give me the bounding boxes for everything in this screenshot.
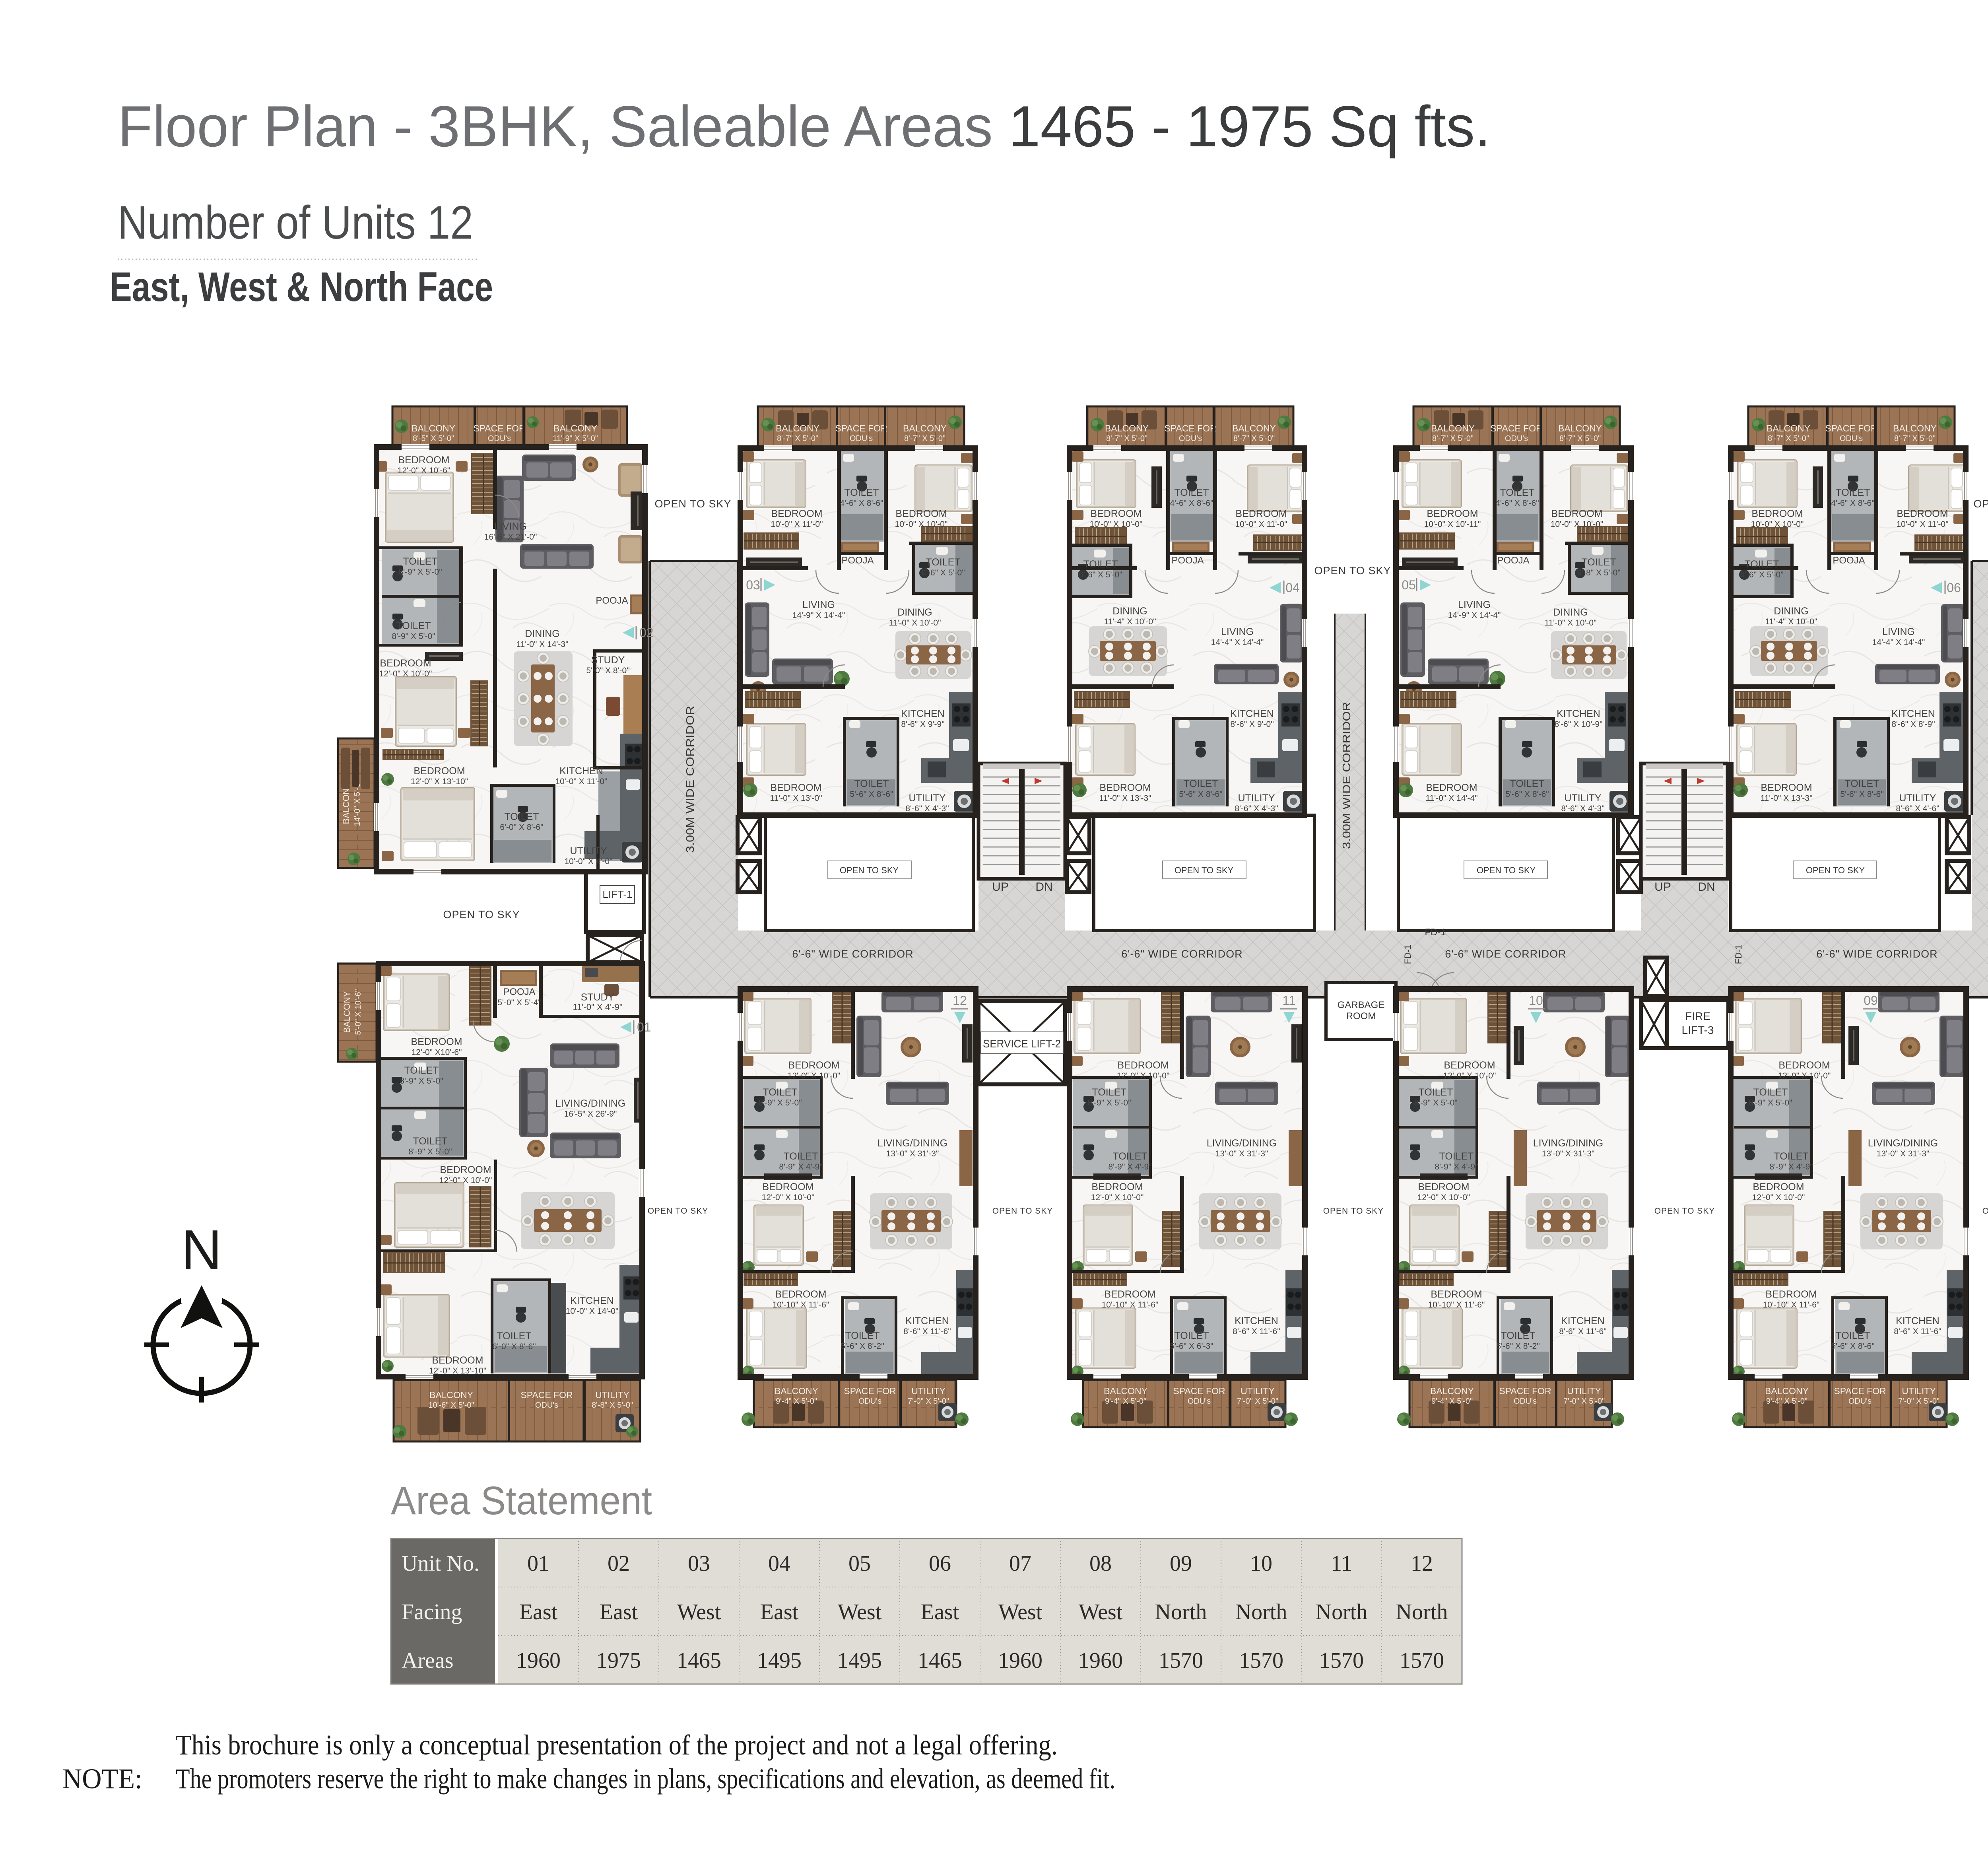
svg-text:03: 03 bbox=[688, 1551, 710, 1576]
svg-text:8'-9" X 5'-0": 8'-9" X 5'-0" bbox=[1414, 1098, 1457, 1107]
svg-text:BEDROOM: BEDROOM bbox=[788, 1060, 839, 1071]
svg-text:UTILITY: UTILITY bbox=[1238, 793, 1275, 804]
svg-text:8'-9" X 5'-0": 8'-9" X 5'-0" bbox=[1087, 1098, 1131, 1107]
svg-text:TOILET: TOILET bbox=[854, 778, 889, 789]
svg-text:4'-6" X 8'-6": 4'-6" X 8'-6" bbox=[1831, 499, 1874, 508]
svg-text:TOILET: TOILET bbox=[845, 1330, 879, 1341]
svg-text:BEDROOM: BEDROOM bbox=[775, 1289, 826, 1300]
svg-text:BEDROOM: BEDROOM bbox=[1751, 508, 1803, 519]
svg-text:OPEN TO SKY: OPEN TO SKY bbox=[1806, 865, 1865, 875]
svg-text:North: North bbox=[1396, 1600, 1448, 1624]
svg-text:10'-0" X 10'-0": 10'-0" X 10'-0" bbox=[895, 520, 948, 529]
svg-text:8'-9" X 5'-0": 8'-9" X 5'-0" bbox=[408, 1147, 452, 1156]
svg-text:1570: 1570 bbox=[1319, 1648, 1364, 1673]
svg-text:6'-6" WIDE CORRIDOR: 6'-6" WIDE CORRIDOR bbox=[1445, 948, 1566, 960]
svg-text:BALCONY: BALCONY bbox=[1558, 423, 1602, 433]
svg-text:BEDROOM: BEDROOM bbox=[440, 1164, 491, 1175]
svg-text:11'-0" X 14'-3": 11'-0" X 14'-3" bbox=[516, 640, 568, 649]
svg-text:BALCONY: BALCONY bbox=[412, 423, 455, 433]
svg-text:14'-9" X 14'-4": 14'-9" X 14'-4" bbox=[1448, 611, 1501, 620]
svg-text:SPACE FOR: SPACE FOR bbox=[1499, 1386, 1551, 1396]
svg-text:1465: 1465 bbox=[918, 1648, 962, 1673]
svg-text:7'-0" X 5'-0": 7'-0" X 5'-0" bbox=[1898, 1397, 1939, 1406]
svg-text:BALCONY: BALCONY bbox=[1893, 423, 1937, 433]
svg-text:UTILITY: UTILITY bbox=[909, 793, 945, 804]
svg-text:SPACE FOR: SPACE FOR bbox=[1834, 1386, 1886, 1396]
svg-text:TOILET: TOILET bbox=[504, 811, 539, 822]
svg-text:LIVING/DINING: LIVING/DINING bbox=[1533, 1138, 1603, 1149]
svg-text:6'-0" X 8'-6": 6'-0" X 8'-6" bbox=[492, 1342, 536, 1351]
svg-text:11'-0" X 10'-0": 11'-0" X 10'-0" bbox=[889, 618, 941, 627]
svg-text:10'-0" X 11'-0": 10'-0" X 11'-0" bbox=[555, 777, 607, 786]
svg-text:10'-0" X 11'-0": 10'-0" X 11'-0" bbox=[1896, 520, 1948, 529]
svg-text:12'-0" X 10'-0": 12'-0" X 10'-0" bbox=[1443, 1071, 1496, 1080]
svg-text:LIVING/DINING: LIVING/DINING bbox=[555, 1098, 625, 1109]
svg-text:SPACE FOR: SPACE FOR bbox=[1173, 1386, 1225, 1396]
svg-text:DINING: DINING bbox=[1112, 606, 1147, 617]
svg-text:9'-4" X 5'-0": 9'-4" X 5'-0" bbox=[776, 1397, 817, 1406]
svg-text:11: 11 bbox=[1282, 993, 1295, 1008]
svg-text:10'-10" X 11'-6": 10'-10" X 11'-6" bbox=[1428, 1300, 1485, 1309]
svg-text:KITCHEN: KITCHEN bbox=[1896, 1315, 1939, 1327]
svg-text:9'-4" X 5'-0": 9'-4" X 5'-0" bbox=[1105, 1397, 1146, 1406]
svg-text:8'-7" X 5'-0": 8'-7" X 5'-0" bbox=[1432, 434, 1474, 443]
svg-text:8'-6" X 11'-6": 8'-6" X 11'-6" bbox=[1233, 1327, 1280, 1336]
svg-text:TOILET: TOILET bbox=[1174, 1330, 1209, 1341]
svg-text:OPEN TO SKY: OPEN TO SKY bbox=[1323, 1206, 1384, 1216]
svg-text:LIFT-1: LIFT-1 bbox=[602, 888, 632, 900]
svg-text:TOILET: TOILET bbox=[783, 1151, 818, 1162]
svg-text:4'-6" X 8'-6": 4'-6" X 8'-6" bbox=[1495, 499, 1539, 508]
svg-text:BEDROOM: BEDROOM bbox=[1778, 1060, 1830, 1071]
svg-text:6'-8" X 5'-0": 6'-8" X 5'-0" bbox=[1577, 568, 1620, 577]
svg-text:16'-5" X 21'-0": 16'-5" X 21'-0" bbox=[484, 532, 537, 542]
svg-text:1495: 1495 bbox=[757, 1648, 802, 1673]
svg-text:5'-6" X 8'-6": 5'-6" X 8'-6" bbox=[1505, 790, 1549, 799]
svg-text:16'-5" X 26'-9": 16'-5" X 26'-9" bbox=[564, 1109, 617, 1119]
svg-text:TOILET: TOILET bbox=[1112, 1151, 1147, 1162]
svg-text:BEDROOM: BEDROOM bbox=[1090, 508, 1142, 519]
svg-text:1960: 1960 bbox=[998, 1648, 1043, 1673]
svg-text:BEDROOM: BEDROOM bbox=[762, 1181, 813, 1193]
svg-text:TOILET: TOILET bbox=[1844, 778, 1879, 789]
svg-text:TOILET: TOILET bbox=[1501, 1330, 1535, 1341]
svg-text:BEDROOM: BEDROOM bbox=[398, 455, 449, 466]
svg-text:8'-9" X 4'-9": 8'-9" X 4'-9" bbox=[779, 1162, 822, 1171]
svg-text:KITCHEN: KITCHEN bbox=[1561, 1315, 1605, 1327]
svg-text:West: West bbox=[677, 1600, 721, 1624]
svg-text:DINING: DINING bbox=[897, 607, 932, 618]
svg-text:1975: 1975 bbox=[596, 1648, 641, 1673]
svg-text:N: N bbox=[181, 1218, 222, 1282]
svg-text:Unit No.: Unit No. bbox=[402, 1551, 480, 1576]
svg-text:11'-4" X 10'-0": 11'-4" X 10'-0" bbox=[1765, 617, 1817, 626]
svg-text:TOILET: TOILET bbox=[1083, 559, 1118, 570]
svg-text:5'-6" X 8'-6": 5'-6" X 8'-6" bbox=[1831, 1342, 1874, 1351]
svg-text:LIVING/DINING: LIVING/DINING bbox=[878, 1138, 947, 1149]
svg-text:12: 12 bbox=[953, 993, 967, 1008]
svg-text:06: 06 bbox=[1947, 581, 1961, 595]
svg-text:05: 05 bbox=[1402, 578, 1416, 592]
svg-text:ODU's: ODU's bbox=[1514, 1397, 1537, 1406]
svg-text:FD-1: FD-1 bbox=[1425, 927, 1446, 938]
svg-text:OPEN TO SKY: OPEN TO SKY bbox=[443, 909, 520, 921]
svg-text:12'-0" X 10'-0": 12'-0" X 10'-0" bbox=[1091, 1193, 1144, 1202]
svg-text:BEDROOM: BEDROOM bbox=[380, 658, 431, 669]
svg-text:ODU's: ODU's bbox=[1179, 434, 1202, 443]
svg-text:KITCHEN: KITCHEN bbox=[1235, 1315, 1278, 1327]
svg-text:UTILITY: UTILITY bbox=[595, 1390, 629, 1400]
svg-text:BEDROOM: BEDROOM bbox=[1099, 782, 1151, 793]
svg-text:8'-6" X 4'-3": 8'-6" X 4'-3" bbox=[905, 804, 949, 813]
svg-text:8'-6" X 4'-6": 8'-6" X 4'-6" bbox=[1896, 804, 1939, 813]
svg-text:TOILET: TOILET bbox=[1183, 778, 1218, 789]
svg-text:SPACE FOR: SPACE FOR bbox=[473, 423, 525, 433]
svg-text:03: 03 bbox=[746, 578, 760, 592]
svg-text:6'-6" X 5'-0": 6'-6" X 5'-0" bbox=[1740, 570, 1783, 579]
svg-text:11'-0" X 10'-0": 11'-0" X 10'-0" bbox=[1544, 618, 1596, 627]
svg-text:ODU's: ODU's bbox=[535, 1401, 558, 1410]
svg-text:5'-6" X 8'-6": 5'-6" X 8'-6" bbox=[1840, 790, 1883, 799]
svg-text:TOILET: TOILET bbox=[1744, 559, 1779, 570]
svg-text:8'-7" X 5'-0": 8'-7" X 5'-0" bbox=[1233, 434, 1275, 443]
svg-text:BEDROOM: BEDROOM bbox=[771, 508, 822, 519]
svg-text:1960: 1960 bbox=[516, 1648, 561, 1673]
svg-text:8'-5" X 5'-0": 8'-5" X 5'-0" bbox=[413, 434, 454, 443]
svg-text:SERVICE LIFT-2: SERVICE LIFT-2 bbox=[983, 1037, 1061, 1050]
svg-text:KITCHEN: KITCHEN bbox=[559, 765, 603, 777]
svg-text:KITCHEN: KITCHEN bbox=[1891, 708, 1935, 719]
svg-text:POOJA: POOJA bbox=[841, 555, 874, 566]
svg-text:STUDY: STUDY bbox=[591, 655, 625, 666]
svg-text:14'-0" X 5'-0": 14'-0" X 5'-0" bbox=[353, 780, 362, 826]
svg-text:8'-6" X 11'-6": 8'-6" X 11'-6" bbox=[1894, 1327, 1941, 1336]
svg-text:TOILET: TOILET bbox=[1835, 487, 1870, 498]
svg-text:OPEN TO SKY: OPEN TO SKY bbox=[1314, 565, 1391, 577]
svg-text:8'-7" X 5'-0": 8'-7" X 5'-0" bbox=[1768, 434, 1809, 443]
svg-text:10'-10" X 11'-6": 10'-10" X 11'-6" bbox=[773, 1300, 829, 1309]
svg-text:OPEN TO SKY: OPEN TO SKY bbox=[1654, 1206, 1715, 1216]
svg-text:8'-7" X 5'-0": 8'-7" X 5'-0" bbox=[904, 434, 945, 443]
svg-text:8'-6" X 4'-3": 8'-6" X 4'-3" bbox=[1235, 804, 1278, 813]
svg-text:6'-6" X 5'-0": 6'-6" X 5'-0" bbox=[1079, 570, 1122, 579]
svg-text:OPEN TO SKY: OPEN TO SKY bbox=[654, 498, 731, 510]
svg-text:04: 04 bbox=[1285, 581, 1300, 595]
svg-text:West: West bbox=[998, 1600, 1043, 1624]
svg-text:8'-6" X 9'-0": 8'-6" X 9'-0" bbox=[1230, 720, 1274, 729]
svg-text:BEDROOM: BEDROOM bbox=[1091, 1181, 1143, 1193]
svg-text:UTILITY: UTILITY bbox=[1241, 1386, 1275, 1396]
svg-text:12'-0" X 13'-10": 12'-0" X 13'-10" bbox=[429, 1366, 486, 1375]
svg-text:12'-0" X10'-6": 12'-0" X10'-6" bbox=[412, 1048, 462, 1057]
svg-text:POOJA: POOJA bbox=[1171, 555, 1204, 566]
svg-text:OPEN TO SKY: OPEN TO SKY bbox=[1175, 865, 1234, 875]
svg-text:North: North bbox=[1235, 1600, 1287, 1624]
svg-text:BEDROOM: BEDROOM bbox=[1431, 1289, 1482, 1300]
svg-text:05: 05 bbox=[848, 1551, 871, 1576]
svg-text:Floor Plan - 3BHK, Saleable Ar: Floor Plan - 3BHK, Saleable Areas 1465 -… bbox=[118, 94, 1491, 159]
svg-text:12'-0" X 10'-6": 12'-0" X 10'-6" bbox=[398, 466, 450, 475]
svg-text:North: North bbox=[1316, 1600, 1368, 1624]
svg-text:Areas: Areas bbox=[402, 1648, 454, 1673]
svg-text:5'-6" X 8'-2": 5'-6" X 8'-2" bbox=[1496, 1342, 1540, 1351]
svg-text:LIVING: LIVING bbox=[1458, 599, 1491, 610]
svg-text:POOJA: POOJA bbox=[503, 987, 535, 997]
svg-text:BALCONY: BALCONY bbox=[775, 1386, 818, 1396]
svg-text:TOILET: TOILET bbox=[844, 487, 879, 498]
svg-text:8'-9" X 4'-9": 8'-9" X 4'-9" bbox=[1108, 1162, 1151, 1171]
svg-text:12'-0" X 10'-0": 12'-0" X 10'-0" bbox=[1778, 1071, 1831, 1080]
svg-text:Area Statement: Area Statement bbox=[391, 1478, 652, 1523]
svg-text:BEDROOM: BEDROOM bbox=[1897, 508, 1948, 519]
svg-text:OPEN TO SKY: OPEN TO SKY bbox=[992, 1206, 1053, 1216]
svg-text:11'-9" X 5'-0": 11'-9" X 5'-0" bbox=[553, 434, 598, 443]
svg-text:1465: 1465 bbox=[677, 1648, 721, 1673]
svg-text:POOJA: POOJA bbox=[596, 595, 628, 606]
svg-text:GARBAGE: GARBAGE bbox=[1338, 1000, 1385, 1010]
svg-text:KITCHEN: KITCHEN bbox=[570, 1295, 614, 1306]
svg-text:06: 06 bbox=[929, 1551, 951, 1576]
svg-text:11'-0" X 13'-0": 11'-0" X 13'-0" bbox=[770, 794, 822, 803]
svg-text:Facing: Facing bbox=[402, 1600, 462, 1624]
svg-text:BEDROOM: BEDROOM bbox=[770, 782, 821, 793]
svg-text:12'-0" X 10'-0": 12'-0" X 10'-0" bbox=[788, 1071, 841, 1080]
svg-text:12'-0" X 10'-0": 12'-0" X 10'-0" bbox=[439, 1176, 492, 1185]
svg-text:9'-4" X 5'-0": 9'-4" X 5'-0" bbox=[1766, 1397, 1807, 1406]
svg-text:7'-0" X 5'-0": 7'-0" X 5'-0" bbox=[1563, 1397, 1605, 1406]
svg-text:8'-9" X 4'-9": 8'-9" X 4'-9" bbox=[1435, 1162, 1478, 1171]
svg-text:FD-1: FD-1 bbox=[1734, 945, 1743, 964]
svg-text:TOILET: TOILET bbox=[413, 1136, 447, 1147]
svg-text:East: East bbox=[519, 1600, 558, 1624]
svg-text:5'-0" X 8'-0": 5'-0" X 8'-0" bbox=[586, 666, 629, 675]
svg-text:LIVING: LIVING bbox=[802, 599, 835, 610]
svg-text:DINING: DINING bbox=[1553, 607, 1588, 618]
svg-text:East: East bbox=[760, 1600, 799, 1624]
svg-text:4'-6" X 8'-6": 4'-6" X 8'-6" bbox=[1170, 499, 1213, 508]
svg-text:TOILET: TOILET bbox=[1510, 778, 1544, 789]
svg-text:TOILET: TOILET bbox=[497, 1331, 531, 1342]
svg-text:UTILITY: UTILITY bbox=[1902, 1386, 1936, 1396]
svg-text:BALCONY: BALCONY bbox=[776, 423, 819, 433]
svg-text:BALCONY: BALCONY bbox=[1232, 423, 1276, 433]
svg-text:1960: 1960 bbox=[1078, 1648, 1123, 1673]
svg-text:13'-0" X 31'-3": 13'-0" X 31'-3" bbox=[1542, 1149, 1595, 1158]
svg-text:8'-9" X 5'-0": 8'-9" X 5'-0" bbox=[392, 632, 435, 641]
svg-text:BEDROOM: BEDROOM bbox=[895, 508, 947, 519]
svg-text:3.00M WIDE CORRIDOR: 3.00M WIDE CORRIDOR bbox=[684, 706, 696, 853]
svg-text:10'-10" X 11'-6": 10'-10" X 11'-6" bbox=[1763, 1300, 1820, 1309]
svg-text:5'-6" X 8'-6": 5'-6" X 8'-6" bbox=[1179, 790, 1222, 799]
svg-text:SPACE FOR: SPACE FOR bbox=[520, 1390, 573, 1400]
svg-text:8'-6" X 8'-9": 8'-6" X 8'-9" bbox=[1891, 720, 1935, 729]
svg-text:SPACE FOR: SPACE FOR bbox=[1825, 423, 1877, 433]
svg-text:1570: 1570 bbox=[1159, 1648, 1203, 1673]
svg-text:ODU's: ODU's bbox=[1505, 434, 1528, 443]
svg-text:SPACE FOR: SPACE FOR bbox=[844, 1386, 896, 1396]
svg-text:11'-4" X 10'-0": 11'-4" X 10'-0" bbox=[1104, 617, 1156, 626]
svg-text:6'-6" WIDE CORRIDOR: 6'-6" WIDE CORRIDOR bbox=[1816, 948, 1938, 960]
svg-text:North: North bbox=[1155, 1600, 1207, 1624]
svg-text:10'-0" X 11'-0": 10'-0" X 11'-0" bbox=[771, 520, 823, 529]
svg-text:ODU's: ODU's bbox=[1188, 1397, 1211, 1406]
svg-text:OPEN TO SKY: OPEN TO SKY bbox=[840, 865, 899, 875]
svg-text:The promoters reserve the righ: The promoters reserve the right to make … bbox=[176, 1763, 1115, 1795]
svg-text:BALCONY: BALCONY bbox=[342, 991, 352, 1033]
svg-text:5'-6" X 8'-2": 5'-6" X 8'-2" bbox=[841, 1342, 884, 1351]
svg-text:TOILET: TOILET bbox=[1174, 487, 1209, 498]
svg-text:6'-0" X 8'-6": 6'-0" X 8'-6" bbox=[500, 823, 543, 832]
svg-text:LIVING: LIVING bbox=[1221, 626, 1254, 637]
svg-text:6'-6" WIDE CORRIDOR: 6'-6" WIDE CORRIDOR bbox=[792, 948, 913, 960]
svg-text:10'-0" X 4'-0": 10'-0" X 4'-0" bbox=[565, 857, 613, 866]
svg-text:10'-10" X 11'-6": 10'-10" X 11'-6" bbox=[1102, 1300, 1159, 1309]
svg-text:8'-9" X 5'-0": 8'-9" X 5'-0" bbox=[1749, 1098, 1792, 1107]
svg-text:DINING: DINING bbox=[1774, 606, 1809, 617]
svg-text:UTILITY: UTILITY bbox=[1899, 793, 1936, 804]
svg-text:10'-0" X 10'-0": 10'-0" X 10'-0" bbox=[1551, 520, 1604, 529]
svg-text:TOILET: TOILET bbox=[1418, 1087, 1453, 1098]
svg-text:8'-9" X 5'-0": 8'-9" X 5'-0" bbox=[758, 1098, 802, 1107]
svg-text:8'-6" X 4'-3": 8'-6" X 4'-3" bbox=[1561, 804, 1604, 813]
svg-text:13'-0" X 31'-3": 13'-0" X 31'-3" bbox=[1877, 1149, 1930, 1158]
svg-text:BEDROOM: BEDROOM bbox=[1418, 1181, 1469, 1193]
svg-text:UP: UP bbox=[992, 880, 1009, 894]
svg-text:14'-4" X 14'-4": 14'-4" X 14'-4" bbox=[1872, 638, 1925, 647]
svg-text:NOTE:: NOTE: bbox=[62, 1763, 142, 1795]
svg-text:BALCONY: BALCONY bbox=[1430, 1386, 1474, 1396]
svg-text:BALCONY: BALCONY bbox=[1105, 423, 1149, 433]
svg-text:11'-0" X 13'-3": 11'-0" X 13'-3" bbox=[1760, 794, 1812, 803]
svg-text:11'-0" X 13'-3": 11'-0" X 13'-3" bbox=[1099, 794, 1151, 803]
svg-text:OPEN TO SKY: OPEN TO SKY bbox=[1477, 865, 1536, 875]
svg-text:10'-0" X 10'-11": 10'-0" X 10'-11" bbox=[1424, 520, 1481, 529]
svg-text:TOILET: TOILET bbox=[1439, 1151, 1474, 1162]
svg-text:02: 02 bbox=[608, 1551, 630, 1576]
svg-text:LIVING: LIVING bbox=[1882, 626, 1915, 637]
svg-text:OPEN TO SKY: OPEN TO SKY bbox=[1973, 498, 1988, 510]
svg-text:1495: 1495 bbox=[837, 1648, 882, 1673]
svg-text:DN: DN bbox=[1698, 880, 1715, 894]
svg-text:Number of Units 12: Number of Units 12 bbox=[118, 196, 473, 249]
svg-text:SPACE FOR: SPACE FOR bbox=[835, 423, 887, 433]
svg-text:10'-0" X 14'-0": 10'-0" X 14'-0" bbox=[566, 1307, 619, 1316]
svg-text:ROOM: ROOM bbox=[1346, 1011, 1376, 1022]
svg-text:TOILET: TOILET bbox=[926, 557, 960, 568]
svg-text:02: 02 bbox=[639, 626, 654, 640]
svg-text:12'-0" X 10'-0": 12'-0" X 10'-0" bbox=[1752, 1193, 1805, 1202]
svg-text:12: 12 bbox=[1411, 1551, 1433, 1576]
svg-text:14'-4" X 14'-4": 14'-4" X 14'-4" bbox=[1211, 638, 1264, 647]
svg-text:LIVING/DINING: LIVING/DINING bbox=[1207, 1138, 1277, 1149]
svg-text:POOJA: POOJA bbox=[1833, 555, 1865, 566]
svg-text:BEDROOM: BEDROOM bbox=[411, 1036, 462, 1047]
svg-text:East: East bbox=[600, 1600, 638, 1624]
svg-text:TOILET: TOILET bbox=[1774, 1151, 1808, 1162]
svg-text:BEDROOM: BEDROOM bbox=[1235, 508, 1287, 519]
svg-text:1570: 1570 bbox=[1400, 1648, 1444, 1673]
svg-text:8'-9" X 5'-0": 8'-9" X 5'-0" bbox=[398, 567, 442, 577]
svg-text:10'-0" X 10'-0": 10'-0" X 10'-0" bbox=[1751, 520, 1804, 529]
svg-text:7'-0" X 5'-0": 7'-0" X 5'-0" bbox=[908, 1397, 949, 1406]
svg-text:10: 10 bbox=[1529, 993, 1543, 1008]
svg-text:7'-0" X 5'-0": 7'-0" X 5'-0" bbox=[1237, 1397, 1278, 1406]
svg-text:BEDROOM: BEDROOM bbox=[1444, 1060, 1495, 1071]
svg-text:8'-7" X 5'-0": 8'-7" X 5'-0" bbox=[1106, 434, 1147, 443]
svg-text:10'-0" X 10'-0": 10'-0" X 10'-0" bbox=[1090, 520, 1143, 529]
svg-text:TOILET: TOILET bbox=[763, 1087, 797, 1098]
svg-text:10'-6" X 5'-0": 10'-6" X 5'-0" bbox=[428, 1401, 474, 1410]
svg-text:12'-0" X 10'-0": 12'-0" X 10'-0" bbox=[379, 669, 432, 678]
svg-text:09: 09 bbox=[1864, 993, 1878, 1008]
svg-text:10: 10 bbox=[1250, 1551, 1272, 1576]
svg-text:OPEN TO SKY: OPEN TO SKY bbox=[1982, 1206, 1988, 1216]
svg-text:BEDROOM: BEDROOM bbox=[1117, 1060, 1169, 1071]
svg-text:LIVING: LIVING bbox=[494, 521, 527, 532]
svg-text:East: East bbox=[921, 1600, 959, 1624]
svg-text:ODU's: ODU's bbox=[850, 434, 873, 443]
svg-text:BEDROOM: BEDROOM bbox=[1427, 508, 1478, 519]
svg-text:8'-7" X 5'-0": 8'-7" X 5'-0" bbox=[777, 434, 818, 443]
svg-text:9'-4" X 5'-0": 9'-4" X 5'-0" bbox=[1431, 1397, 1473, 1406]
svg-text:5'-6" X 8'-6": 5'-6" X 8'-6" bbox=[850, 790, 893, 799]
svg-text:This brochure is only a concep: This brochure is only a conceptual prese… bbox=[176, 1729, 1058, 1761]
svg-text:UTILITY: UTILITY bbox=[570, 845, 607, 857]
svg-text:12'-0" X 10'-0": 12'-0" X 10'-0" bbox=[1117, 1071, 1170, 1080]
svg-text:KITCHEN: KITCHEN bbox=[901, 708, 945, 719]
svg-text:TOILET: TOILET bbox=[403, 556, 437, 567]
svg-text:11'-0" X 4'-9": 11'-0" X 4'-9" bbox=[573, 1002, 622, 1012]
svg-text:8'-8" X 5'-0": 8'-8" X 5'-0" bbox=[592, 1401, 633, 1410]
svg-text:10'-0" X 11'-0": 10'-0" X 11'-0" bbox=[1235, 520, 1287, 529]
svg-text:BALCONY: BALCONY bbox=[1767, 423, 1810, 433]
svg-text:BALCONY: BALCONY bbox=[1104, 1386, 1147, 1396]
svg-text:13'-0" X 31'-3": 13'-0" X 31'-3" bbox=[1215, 1149, 1268, 1158]
svg-text:4'-6" X 8'-6": 4'-6" X 8'-6" bbox=[840, 499, 883, 508]
svg-text:8'-6" X 11'-6": 8'-6" X 11'-6" bbox=[903, 1327, 951, 1336]
svg-text:8'-6" X 10'-9": 8'-6" X 10'-9" bbox=[1555, 720, 1603, 729]
svg-text:STUDY: STUDY bbox=[581, 992, 615, 1003]
svg-text:TOILET: TOILET bbox=[1753, 1087, 1788, 1098]
svg-text:13'-0" X 31'-3": 13'-0" X 31'-3" bbox=[886, 1149, 939, 1158]
svg-text:TOILET: TOILET bbox=[1835, 1330, 1870, 1341]
svg-text:ODU's: ODU's bbox=[1848, 1397, 1872, 1406]
svg-text:BEDROOM: BEDROOM bbox=[432, 1355, 483, 1366]
svg-text:UTILITY: UTILITY bbox=[911, 1386, 945, 1396]
svg-text:BALCONY: BALCONY bbox=[429, 1390, 473, 1400]
svg-text:01: 01 bbox=[637, 1020, 651, 1034]
svg-text:BEDROOM: BEDROOM bbox=[1761, 782, 1812, 793]
svg-text:BALCONY: BALCONY bbox=[903, 423, 947, 433]
svg-text:BEDROOM: BEDROOM bbox=[1765, 1289, 1817, 1300]
svg-text:ODU's: ODU's bbox=[858, 1397, 881, 1406]
svg-text:01: 01 bbox=[527, 1551, 549, 1576]
svg-text:BEDROOM: BEDROOM bbox=[1426, 782, 1477, 793]
svg-text:07: 07 bbox=[1009, 1551, 1031, 1576]
svg-text:OPEN TO SKY: OPEN TO SKY bbox=[648, 1206, 709, 1216]
svg-text:12'-0" X 10'-0": 12'-0" X 10'-0" bbox=[1417, 1193, 1470, 1202]
svg-text:TOILET: TOILET bbox=[1581, 557, 1616, 568]
svg-text:6'-6" X 5'-0": 6'-6" X 5'-0" bbox=[921, 568, 965, 577]
svg-text:KITCHEN: KITCHEN bbox=[905, 1315, 949, 1327]
svg-text:6'-6" WIDE CORRIDOR: 6'-6" WIDE CORRIDOR bbox=[1121, 948, 1242, 960]
svg-text:BEDROOM: BEDROOM bbox=[1551, 508, 1602, 519]
svg-text:8'-6" X 11'-6": 8'-6" X 11'-6" bbox=[1559, 1327, 1606, 1336]
svg-text:12'-0" X 13'-10": 12'-0" X 13'-10" bbox=[411, 777, 468, 786]
svg-text:UTILITY: UTILITY bbox=[1564, 793, 1601, 804]
svg-text:BALCONY: BALCONY bbox=[1765, 1386, 1809, 1396]
svg-text:LIFT-3: LIFT-3 bbox=[1682, 1024, 1714, 1036]
